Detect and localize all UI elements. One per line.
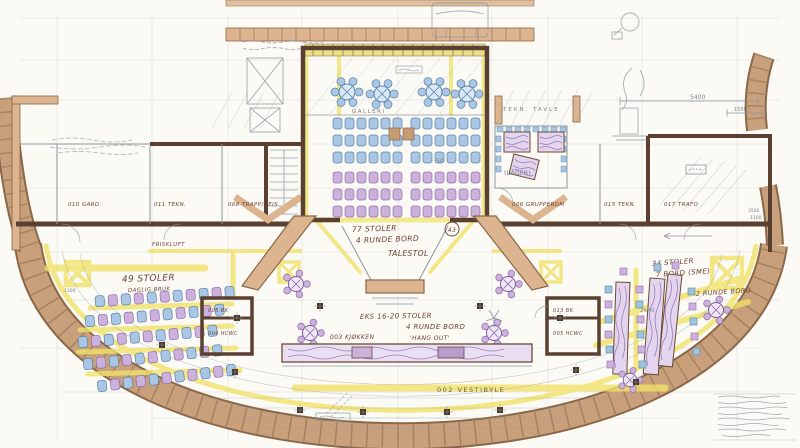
floor-plan-svg: 5400 1550	[0, 0, 800, 448]
label-hang-out: 'HANG OUT'	[410, 335, 450, 342]
label-gard: 010 GARD.	[68, 202, 102, 208]
label-trapp: 008 TRAPP/HEIS	[228, 202, 278, 208]
floor-plan-drawing: 5400 1550	[0, 0, 800, 448]
label-friskluft: FRISKLUFT	[152, 242, 185, 248]
label-eks-stoler: EKS 16-20 STOLER	[360, 312, 432, 321]
label-005-bk: 005 BK	[208, 308, 229, 314]
label-trafo: 017 TRAFO	[664, 202, 699, 208]
label-galleri: GALLERI	[352, 109, 386, 115]
label-kjokken: 003 KJØKKEN	[330, 334, 374, 341]
podium-platform	[366, 280, 424, 293]
label-tekn15: 015 TEKN.	[604, 202, 636, 208]
label-vestibyle: 002 VESTIBYLE	[437, 386, 505, 394]
label-tekn-tavle: TEKN. TAVLE	[502, 107, 560, 113]
count-50: 50	[436, 158, 444, 165]
label-tekn11: 011 TEKN.	[154, 202, 186, 208]
dim-1100: 1100	[750, 215, 762, 221]
lager-table	[504, 132, 530, 152]
label-grupperom: 006 GRUPPEROM	[512, 202, 565, 208]
label-77-stoler: 77 STOLER	[352, 223, 397, 234]
label-talestol: TALESTOL	[388, 249, 429, 258]
label-lager: (LAGER)	[504, 169, 531, 177]
dim-1300: 1300	[64, 288, 76, 294]
label-004-hcwc: 004 HCWC	[208, 331, 238, 337]
label-49-stoler: 49 STOLER	[122, 273, 175, 285]
label-flex-runde-bord: 4 RUNDE BORD	[406, 323, 466, 331]
label-013-bk: 013 BK	[553, 308, 574, 314]
dim-3500: 3500	[748, 208, 760, 214]
long-table	[613, 282, 630, 374]
reference-number: 43	[448, 227, 456, 234]
lager-table	[538, 132, 564, 152]
dim-5400: 5400	[690, 94, 705, 101]
label-005-hcwc: 005 HCWC	[553, 331, 583, 337]
dim-24-40: 24/40	[640, 308, 654, 314]
dim-1550: 1550	[734, 107, 747, 113]
